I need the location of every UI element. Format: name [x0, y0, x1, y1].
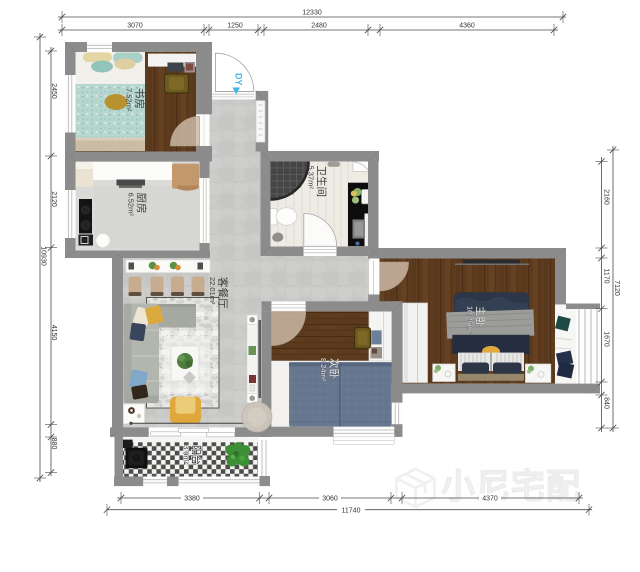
svg-text:8.24m²: 8.24m²	[319, 358, 328, 382]
svg-text:3060: 3060	[322, 496, 338, 503]
svg-text:880: 880	[50, 438, 57, 450]
svg-text:10.25m²: 10.25m²	[466, 306, 475, 334]
svg-text:1250: 1250	[227, 23, 243, 30]
svg-text:6.52m²: 6.52m²	[127, 193, 136, 217]
svg-text:7120: 7120	[613, 280, 620, 296]
svg-text:3380: 3380	[184, 496, 200, 503]
svg-text:1170: 1170	[602, 268, 609, 283]
svg-text:11740: 11740	[342, 508, 361, 515]
svg-text:5.37m²: 5.37m²	[307, 166, 316, 190]
svg-text:客餐厅: 客餐厅	[217, 277, 230, 309]
svg-text:2450: 2450	[50, 83, 57, 99]
svg-text:4360: 4360	[459, 23, 475, 30]
svg-text:22.01m²: 22.01m²	[208, 277, 217, 305]
svg-text:小尼宅配: 小尼宅配	[441, 467, 581, 506]
svg-text:主卧: 主卧	[474, 306, 487, 327]
svg-text:4370: 4370	[482, 496, 498, 503]
svg-text:3070: 3070	[127, 23, 143, 30]
svg-text:3.9m²: 3.9m²	[182, 445, 191, 465]
svg-text:4150: 4150	[50, 325, 57, 341]
svg-text:2480: 2480	[311, 23, 327, 30]
svg-text:2120: 2120	[50, 191, 57, 207]
svg-text:2160: 2160	[602, 189, 609, 205]
svg-text:书房: 书房	[133, 88, 146, 109]
svg-text:12330: 12330	[302, 10, 322, 17]
svg-text:10930: 10930	[40, 246, 47, 266]
svg-text:厨房: 厨房	[135, 193, 148, 214]
svg-text:840: 840	[602, 397, 609, 409]
svg-text:DY: DY	[234, 73, 244, 86]
svg-text:次卧: 次卧	[328, 358, 341, 379]
svg-text:1670: 1670	[602, 331, 609, 347]
svg-text:7.52m²: 7.52m²	[125, 88, 134, 112]
svg-text:卫生间: 卫生间	[315, 166, 328, 198]
